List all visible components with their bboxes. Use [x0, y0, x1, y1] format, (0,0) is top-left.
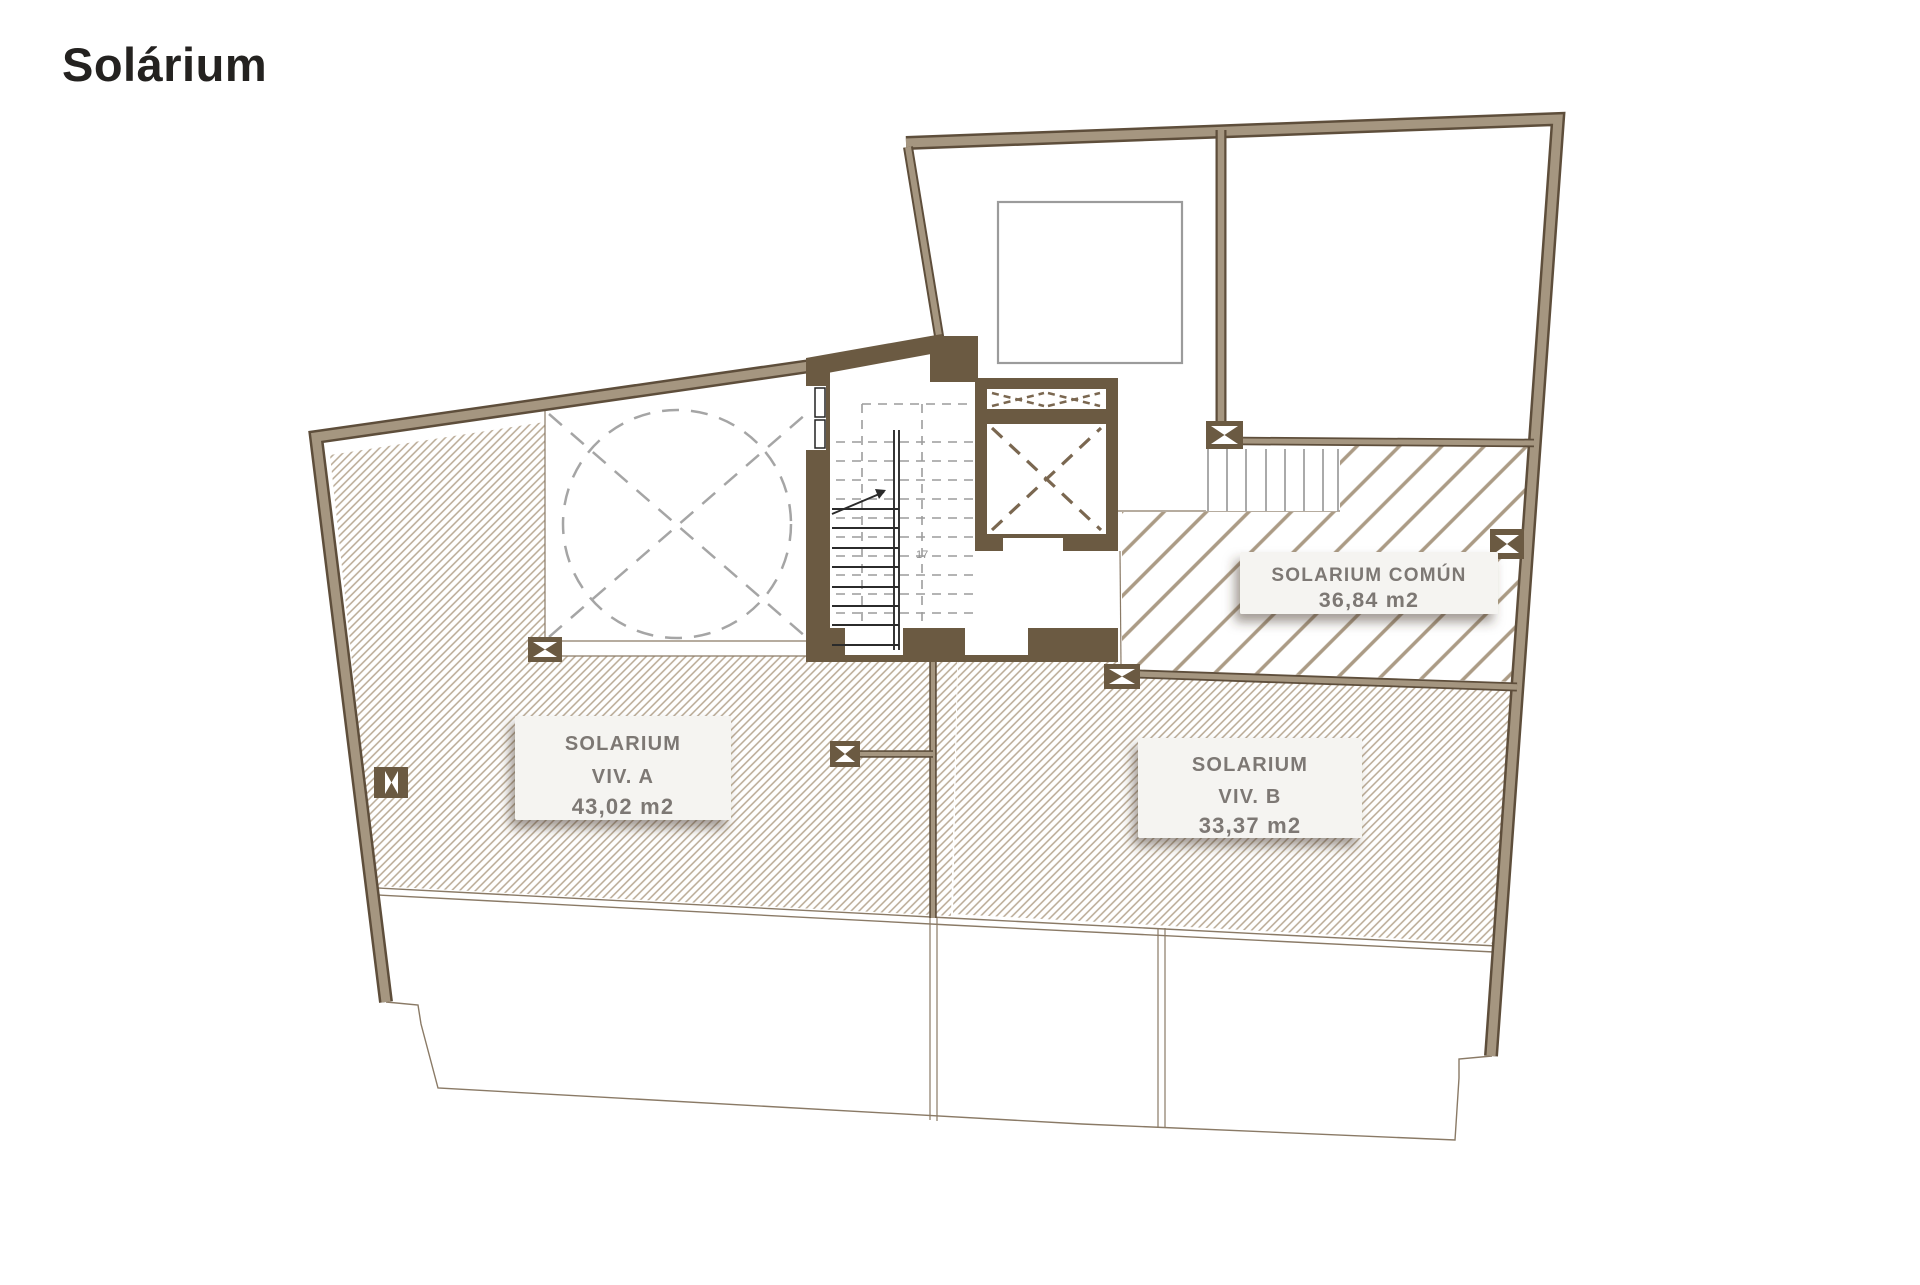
label-comun: SOLARIUM COMÚN 36,84 m2: [1240, 552, 1498, 614]
label-viv-b: SOLARIUM VIV. B 33,37 m2: [1138, 738, 1362, 838]
stair-core: [804, 334, 1118, 662]
area-name: SOLARIUM: [1192, 754, 1308, 776]
vent-box-icon: [528, 637, 562, 662]
area-name: SOLARIUM: [565, 733, 681, 755]
vent-box-icon: [1104, 664, 1140, 689]
label-viv-a: SOLARIUM VIV. A 43,02 m2: [515, 716, 731, 820]
vent-box-icon: [374, 767, 408, 798]
area-size: 43,02 m2: [572, 794, 675, 819]
area-size: 33,37 m2: [1199, 813, 1302, 838]
stair-treads: [832, 430, 899, 650]
stair-riser-count: 17: [916, 549, 928, 561]
stair-direction-arrow: [875, 489, 886, 499]
skylight-outline: [998, 202, 1182, 363]
vent-box-icon: [830, 741, 860, 767]
reserved-circle-room: [545, 368, 810, 656]
page-title: Solárium: [62, 37, 267, 92]
vent-box-icon: [1206, 421, 1243, 449]
area-name: SOLARIUM COMÚN: [1271, 564, 1466, 586]
stairwell: 17: [832, 404, 973, 650]
floorplan-canvas: 17: [0, 0, 1920, 1280]
core-window: [804, 386, 826, 450]
area-unit: VIV. B: [1218, 786, 1281, 808]
area-unit: VIV. A: [592, 766, 654, 788]
elevator-shaft: [975, 378, 1118, 551]
exterior-stairs: [1206, 447, 1339, 511]
area-size: 36,84 m2: [1319, 588, 1419, 612]
